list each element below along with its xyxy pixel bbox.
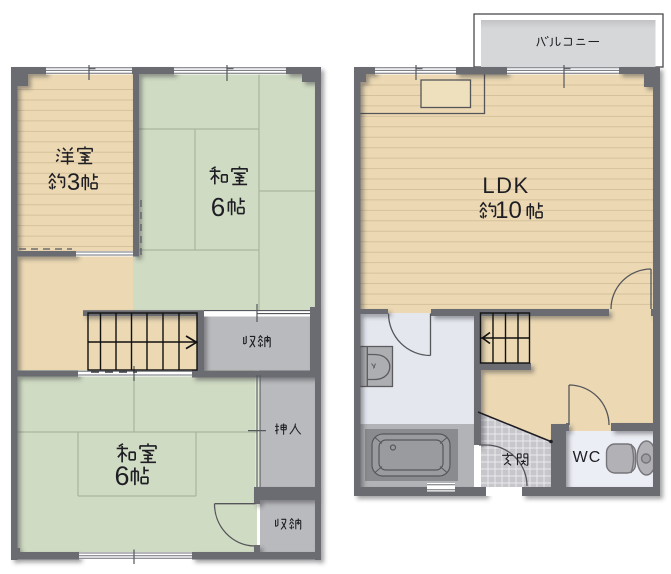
svg-text:3: 3 xyxy=(67,169,80,196)
svg-text:WC: WC xyxy=(573,449,602,466)
svg-text:6: 6 xyxy=(114,461,129,491)
svg-text:6: 6 xyxy=(211,192,225,222)
svg-text:LDK: LDK xyxy=(482,173,529,198)
svg-text:10: 10 xyxy=(495,197,522,224)
